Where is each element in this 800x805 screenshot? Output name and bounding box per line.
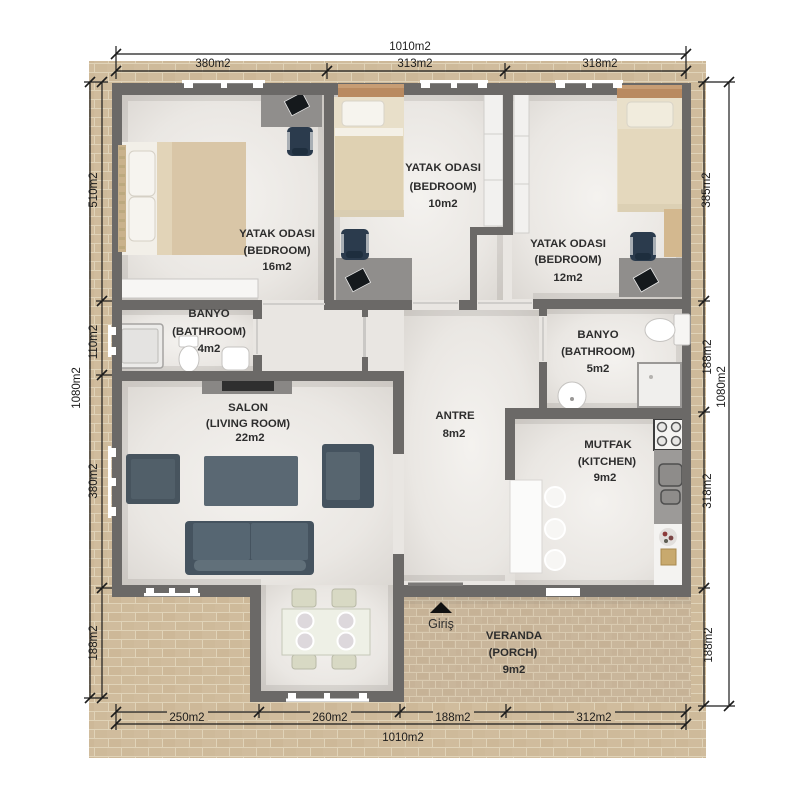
svg-text:1010m2: 1010m2 (389, 41, 431, 53)
svg-text:VERANDA: VERANDA (486, 630, 542, 642)
svg-text:260m2: 260m2 (312, 712, 347, 724)
svg-text:188m2: 188m2 (435, 712, 470, 724)
svg-text:YATAK ODASI: YATAK ODASI (405, 162, 481, 174)
svg-text:(BEDROOM): (BEDROOM) (534, 254, 601, 266)
svg-text:(BATHROOM): (BATHROOM) (561, 346, 635, 358)
svg-text:250m2: 250m2 (169, 712, 204, 724)
svg-text:9m2: 9m2 (503, 664, 526, 676)
svg-text:10m2: 10m2 (428, 198, 457, 210)
svg-text:510m2: 510m2 (88, 172, 100, 207)
svg-text:(BEDROOM): (BEDROOM) (243, 245, 310, 257)
svg-text:312m2: 312m2 (576, 712, 611, 724)
svg-text:YATAK ODASI: YATAK ODASI (239, 228, 315, 240)
svg-text:380m2: 380m2 (88, 463, 100, 498)
svg-text:380m2: 380m2 (195, 58, 230, 70)
svg-text:Giriş: Giriş (428, 617, 454, 631)
svg-text:318m2: 318m2 (702, 473, 714, 508)
svg-text:12m2: 12m2 (553, 272, 582, 284)
svg-text:4m2: 4m2 (198, 343, 221, 355)
svg-text:110m2: 110m2 (88, 325, 100, 359)
svg-text:ANTRE: ANTRE (435, 410, 475, 422)
svg-text:BANYO: BANYO (188, 308, 229, 320)
svg-text:1080m2: 1080m2 (716, 366, 728, 408)
svg-text:188m2: 188m2 (702, 339, 714, 374)
svg-text:385m2: 385m2 (701, 172, 713, 207)
svg-text:313m2: 313m2 (397, 58, 432, 70)
svg-text:22m2: 22m2 (235, 432, 264, 444)
svg-text:(LIVING ROOM): (LIVING ROOM) (206, 418, 290, 430)
svg-text:(KITCHEN): (KITCHEN) (578, 456, 636, 468)
svg-text:188m2: 188m2 (703, 627, 715, 662)
svg-text:188m2: 188m2 (88, 625, 100, 660)
svg-text:8m2: 8m2 (443, 428, 466, 440)
svg-text:SALON: SALON (228, 402, 268, 414)
svg-text:318m2: 318m2 (582, 58, 617, 70)
svg-text:(BATHROOM): (BATHROOM) (172, 326, 246, 338)
svg-text:YATAK ODASI: YATAK ODASI (530, 238, 606, 250)
svg-text:(PORCH): (PORCH) (489, 647, 538, 659)
svg-text:BANYO: BANYO (577, 329, 618, 341)
svg-text:1010m2: 1010m2 (382, 732, 424, 744)
svg-text:9m2: 9m2 (594, 472, 617, 484)
svg-text:16m2: 16m2 (262, 261, 291, 273)
svg-text:1080m2: 1080m2 (71, 367, 83, 409)
svg-text:5m2: 5m2 (587, 363, 610, 375)
svg-text:(BEDROOM): (BEDROOM) (409, 181, 476, 193)
svg-text:MUTFAK: MUTFAK (584, 439, 632, 451)
